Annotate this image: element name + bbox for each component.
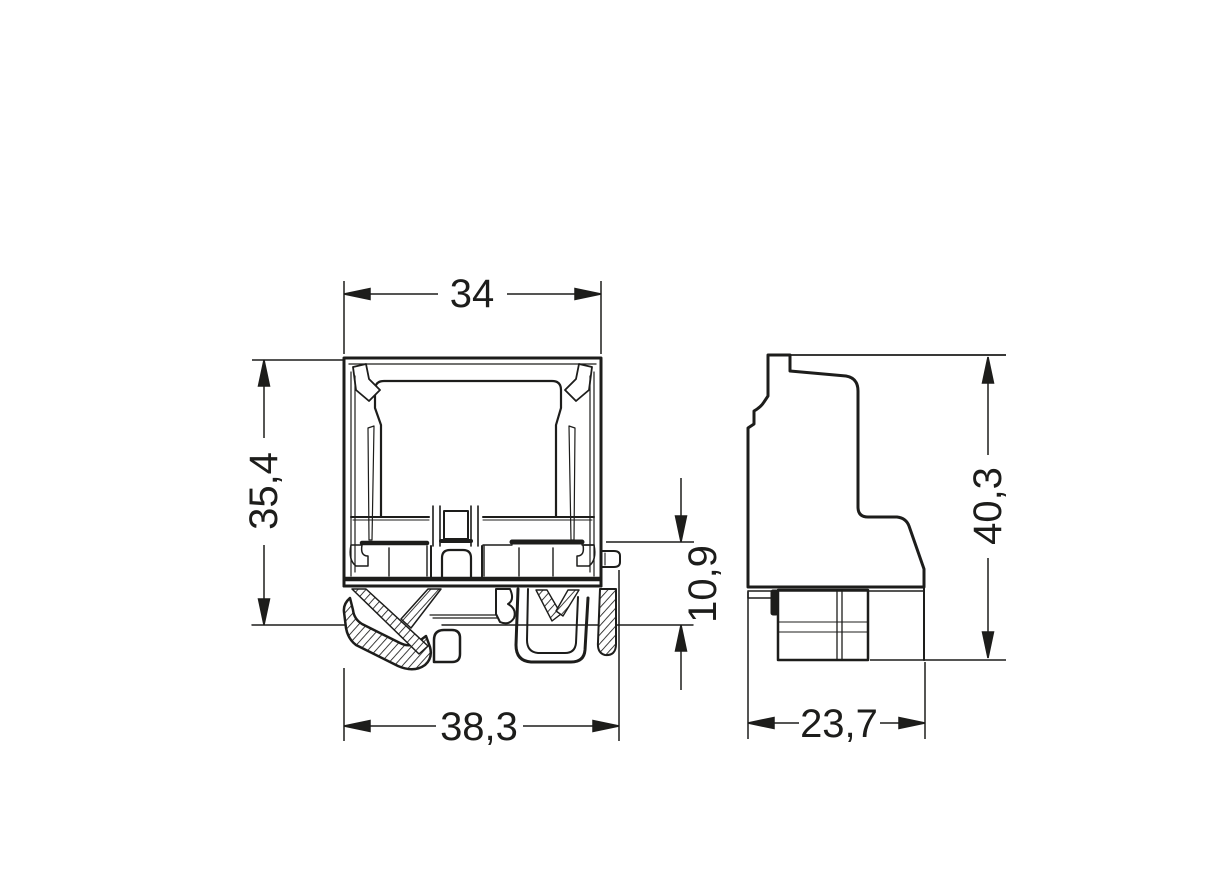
canvas-background — [0, 0, 1231, 876]
dimension-label-front-height: 35,4 — [242, 452, 286, 530]
foot-right-hatched-hook — [598, 589, 616, 655]
dimension-label-front-width-bottom: 38,3 — [440, 705, 518, 749]
foot-right-bracket — [496, 589, 515, 623]
technical-drawing-page: 34 35,4 10,9 38,3 — [0, 0, 1231, 876]
dimension-label-side-depth: 23,7 — [800, 702, 878, 746]
foot-center-hook — [434, 630, 460, 662]
dimension-label-rail-offset: 10,9 — [681, 545, 725, 623]
terminal-block-dimension-drawing: 34 35,4 10,9 38,3 — [0, 0, 1231, 876]
dimension-label-side-height: 40,3 — [966, 467, 1010, 545]
dimension-label-front-width-top: 34 — [450, 272, 495, 316]
